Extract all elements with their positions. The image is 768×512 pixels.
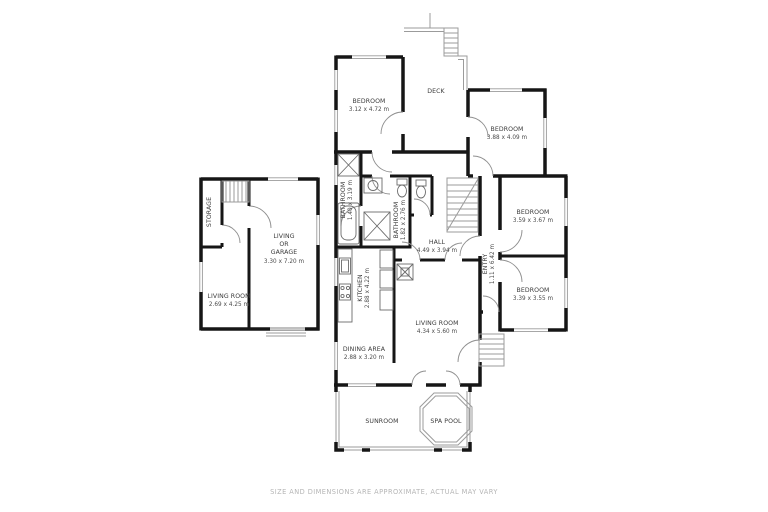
dims-bedroom-top-left: 3.12 x 4.72 m bbox=[349, 107, 390, 113]
dims-bedroom-top-right: 3.88 x 4.09 m bbox=[487, 135, 528, 141]
disclaimer-text: SIZE AND DIMENSIONS ARE APPROXIMATE, ACT… bbox=[270, 488, 498, 496]
label-bedroom-bottom-right: BEDROOM bbox=[517, 287, 550, 294]
fireplace bbox=[397, 264, 413, 280]
garage-threshold bbox=[266, 333, 306, 336]
label-living-room-left: LIVING ROOM bbox=[207, 293, 250, 300]
dims-living-room-main: 4.34 x 5.60 m bbox=[417, 329, 458, 335]
left-building bbox=[200, 178, 320, 337]
label-entry: ENTRY bbox=[482, 254, 489, 275]
deck-stairs bbox=[444, 28, 458, 56]
dims-hall: 4.49 x 3.94 m bbox=[417, 248, 458, 254]
dims-entry: 1.11 x 6.42 m bbox=[490, 243, 496, 284]
label-garage-line3: GARAGE bbox=[271, 249, 298, 256]
label-bedroom-top-right: BEDROOM bbox=[491, 126, 524, 133]
toilet-main-bathroom bbox=[397, 179, 407, 197]
label-deck: DECK bbox=[427, 88, 445, 95]
floor-plan: BEDROOM 3.12 x 4.72 m DECK BEDROOM 3.88 … bbox=[0, 0, 768, 512]
staircase-exterior bbox=[479, 334, 504, 366]
label-dining-area: DINING AREA bbox=[343, 346, 386, 353]
toilet-wc bbox=[416, 180, 426, 198]
label-bedroom-mid-right: BEDROOM bbox=[517, 209, 550, 216]
dims-bathroom-main: 1.82 x 2.76 m bbox=[401, 199, 407, 240]
label-hall: HALL bbox=[429, 239, 446, 246]
label-sunroom: SUNROOM bbox=[365, 418, 398, 425]
label-bathroom-small: BATHROOM bbox=[340, 182, 347, 219]
label-storage: STORAGE bbox=[206, 197, 213, 227]
dims-living-room-left: 2.69 x 4.25 m bbox=[209, 302, 250, 308]
label-spa-pool: SPA POOL bbox=[430, 418, 462, 425]
label-bathroom-main: BATHROOM bbox=[393, 202, 400, 239]
label-living-room-main: LIVING ROOM bbox=[415, 320, 458, 327]
fixtures bbox=[338, 154, 426, 322]
dims-bedroom-bottom-right: 3.39 x 3.55 m bbox=[513, 296, 554, 302]
dims-bathroom-small: 1.40 x 3.19 m bbox=[348, 179, 354, 220]
staircase-left-building bbox=[222, 181, 249, 202]
label-kitchen: KITCHEN bbox=[357, 274, 364, 302]
label-bedroom-top-left: BEDROOM bbox=[353, 98, 386, 105]
label-garage-line2: OR bbox=[279, 241, 289, 248]
shower-small-bathroom bbox=[338, 154, 359, 176]
label-garage-line1: LIVING bbox=[273, 233, 294, 240]
dims-dining-area: 2.88 x 3.20 m bbox=[344, 355, 385, 361]
dims-kitchen: 2.88 x 4.22 m bbox=[365, 267, 371, 308]
shower-main-bathroom bbox=[364, 212, 390, 240]
dims-bedroom-mid-right: 3.59 x 3.67 m bbox=[513, 218, 554, 224]
deck-outline bbox=[404, 13, 467, 90]
dims-garage: 3.30 x 7.20 m bbox=[264, 259, 305, 265]
staircase-hall bbox=[447, 178, 478, 232]
